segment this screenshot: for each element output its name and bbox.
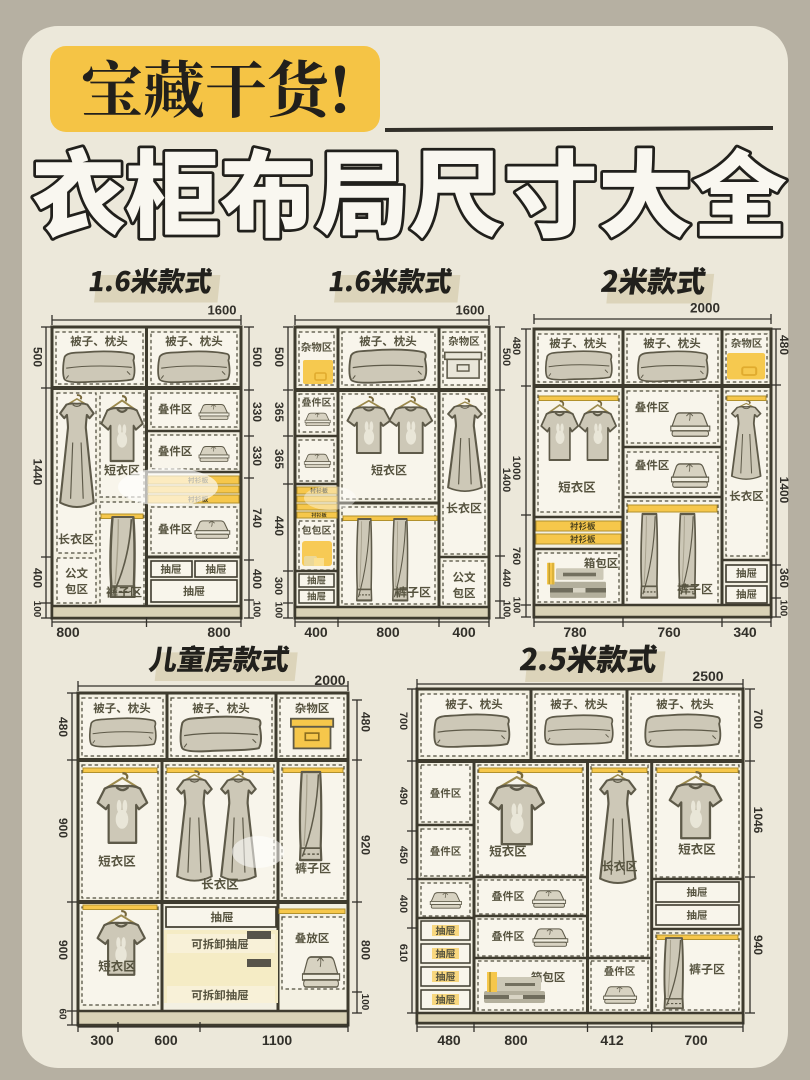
svg-text:700: 700 xyxy=(751,709,765,729)
svg-text:400: 400 xyxy=(250,569,264,589)
svg-text:100: 100 xyxy=(273,602,284,619)
svg-text:1000: 1000 xyxy=(510,456,522,480)
svg-text:700: 700 xyxy=(684,1032,708,1048)
svg-text:100: 100 xyxy=(501,601,512,618)
svg-text:480: 480 xyxy=(358,712,372,732)
svg-text:1100: 1100 xyxy=(262,1032,293,1048)
svg-text:800: 800 xyxy=(376,624,400,640)
svg-text:100: 100 xyxy=(251,601,262,618)
svg-text:500: 500 xyxy=(272,347,286,367)
svg-text:1600: 1600 xyxy=(208,303,237,318)
svg-text:60: 60 xyxy=(57,1008,68,1020)
svg-text:800: 800 xyxy=(358,940,372,960)
svg-text:360: 360 xyxy=(777,568,791,588)
svg-text:100: 100 xyxy=(778,600,789,617)
svg-text:610: 610 xyxy=(397,944,409,962)
svg-text:100: 100 xyxy=(31,601,42,618)
svg-text:2000: 2000 xyxy=(690,301,720,316)
svg-text:450: 450 xyxy=(397,846,409,864)
svg-text:500: 500 xyxy=(30,347,44,367)
svg-text:1046: 1046 xyxy=(751,807,765,834)
svg-text:760: 760 xyxy=(657,624,681,640)
svg-text:490: 490 xyxy=(397,787,409,805)
svg-text:400: 400 xyxy=(30,568,44,588)
svg-text:2500: 2500 xyxy=(692,668,723,684)
svg-text:400: 400 xyxy=(452,624,476,640)
svg-text:330: 330 xyxy=(250,402,264,422)
svg-text:330: 330 xyxy=(250,446,264,466)
svg-text:300: 300 xyxy=(90,1032,114,1048)
svg-text:800: 800 xyxy=(56,624,80,640)
svg-text:760: 760 xyxy=(510,547,522,565)
svg-text:365: 365 xyxy=(272,449,286,469)
svg-text:780: 780 xyxy=(563,624,587,640)
svg-text:480: 480 xyxy=(777,335,791,355)
svg-text:365: 365 xyxy=(272,402,286,422)
svg-text:400: 400 xyxy=(304,624,328,640)
svg-text:740: 740 xyxy=(250,508,264,528)
svg-text:900: 900 xyxy=(56,818,70,838)
svg-text:800: 800 xyxy=(504,1032,528,1048)
svg-text:1600: 1600 xyxy=(456,303,485,318)
svg-text:800: 800 xyxy=(207,624,231,640)
svg-text:412: 412 xyxy=(600,1032,624,1048)
svg-text:480: 480 xyxy=(510,337,522,355)
svg-text:1440: 1440 xyxy=(30,459,44,486)
svg-text:480: 480 xyxy=(437,1032,461,1048)
svg-text:500: 500 xyxy=(250,347,264,367)
svg-text:1400: 1400 xyxy=(777,477,791,504)
svg-text:440: 440 xyxy=(272,516,286,536)
svg-text:340: 340 xyxy=(733,624,757,640)
svg-text:400: 400 xyxy=(397,895,409,913)
svg-text:900: 900 xyxy=(56,940,70,960)
svg-text:480: 480 xyxy=(56,717,70,737)
svg-text:100: 100 xyxy=(359,994,370,1011)
svg-text:940: 940 xyxy=(751,935,765,955)
svg-text:920: 920 xyxy=(358,835,372,855)
svg-text:300: 300 xyxy=(272,577,284,595)
svg-text:700: 700 xyxy=(397,712,409,730)
svg-text:600: 600 xyxy=(154,1032,178,1048)
svg-text:440: 440 xyxy=(500,569,512,587)
svg-text:100: 100 xyxy=(511,597,522,614)
